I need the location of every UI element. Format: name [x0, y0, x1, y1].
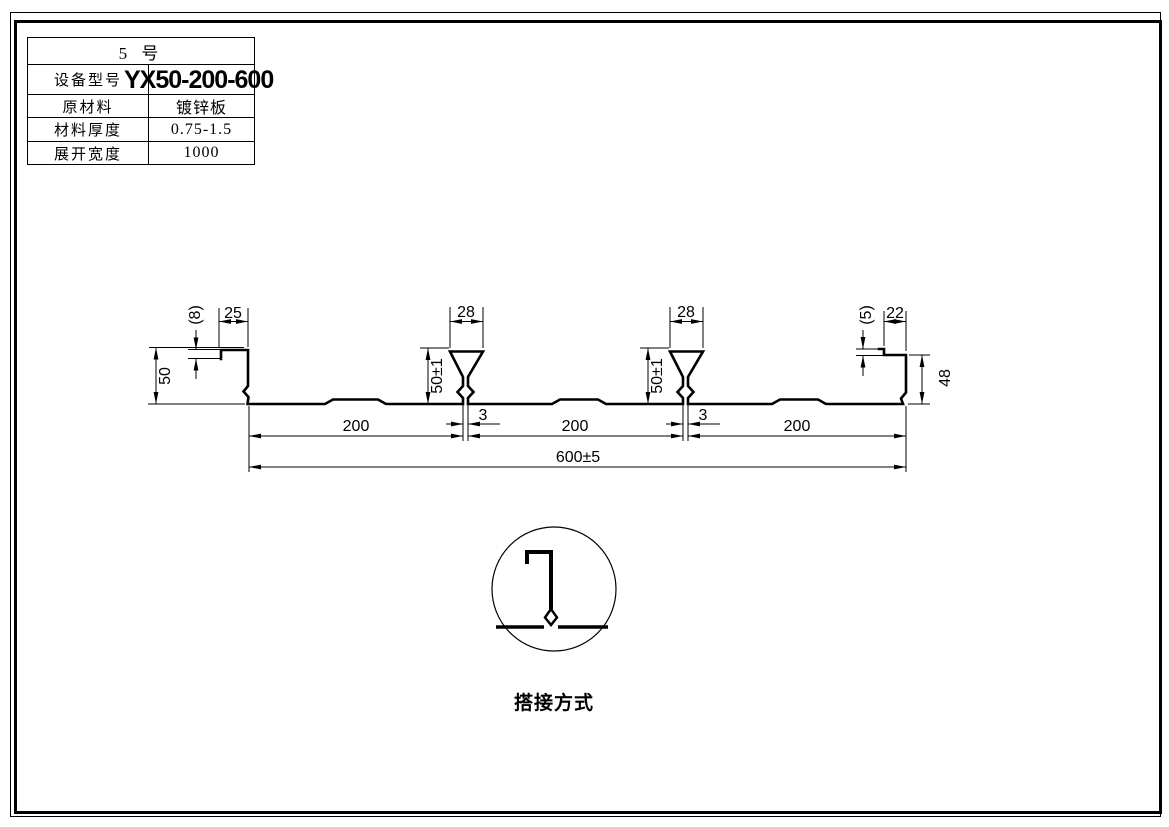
detail-seam-diamond: [545, 609, 557, 625]
dim-rib1-width: 28: [457, 304, 475, 321]
dimension-lines: [156, 322, 922, 468]
dim-right-lip-width: 22: [886, 305, 904, 322]
dim-left-lip-width: 25: [224, 305, 242, 322]
dim-right-lip-return: (5): [858, 305, 875, 325]
dim-rib2-height: 50±1: [649, 358, 666, 394]
dim-span1: 200: [343, 418, 370, 435]
drawing-sheet: 5 号 设备型号 YX50-200-600 原材料 镀锌板 材料厚度 0.75-…: [0, 0, 1169, 827]
dim-total-width: 600±5: [556, 449, 600, 466]
dim-rib1-stem: 3: [479, 407, 488, 424]
detail-hook: [527, 552, 551, 609]
lap-joint-detail: [492, 527, 616, 651]
detail-circle: [492, 527, 616, 651]
dim-rib2-stem: 3: [699, 407, 708, 424]
lap-joint-caption: 搭接方式: [474, 688, 634, 715]
dim-span2: 200: [562, 418, 589, 435]
dim-span3: 200: [784, 418, 811, 435]
profile-outline: [221, 349, 906, 404]
dim-right-height: 48: [937, 369, 954, 387]
dim-rib2-width: 28: [677, 304, 695, 321]
dim-rib1-height: 50±1: [429, 358, 446, 394]
dim-left-height: 50: [157, 367, 174, 385]
extension-lines: [148, 307, 930, 472]
dim-left-lip-return: (8): [187, 305, 204, 325]
